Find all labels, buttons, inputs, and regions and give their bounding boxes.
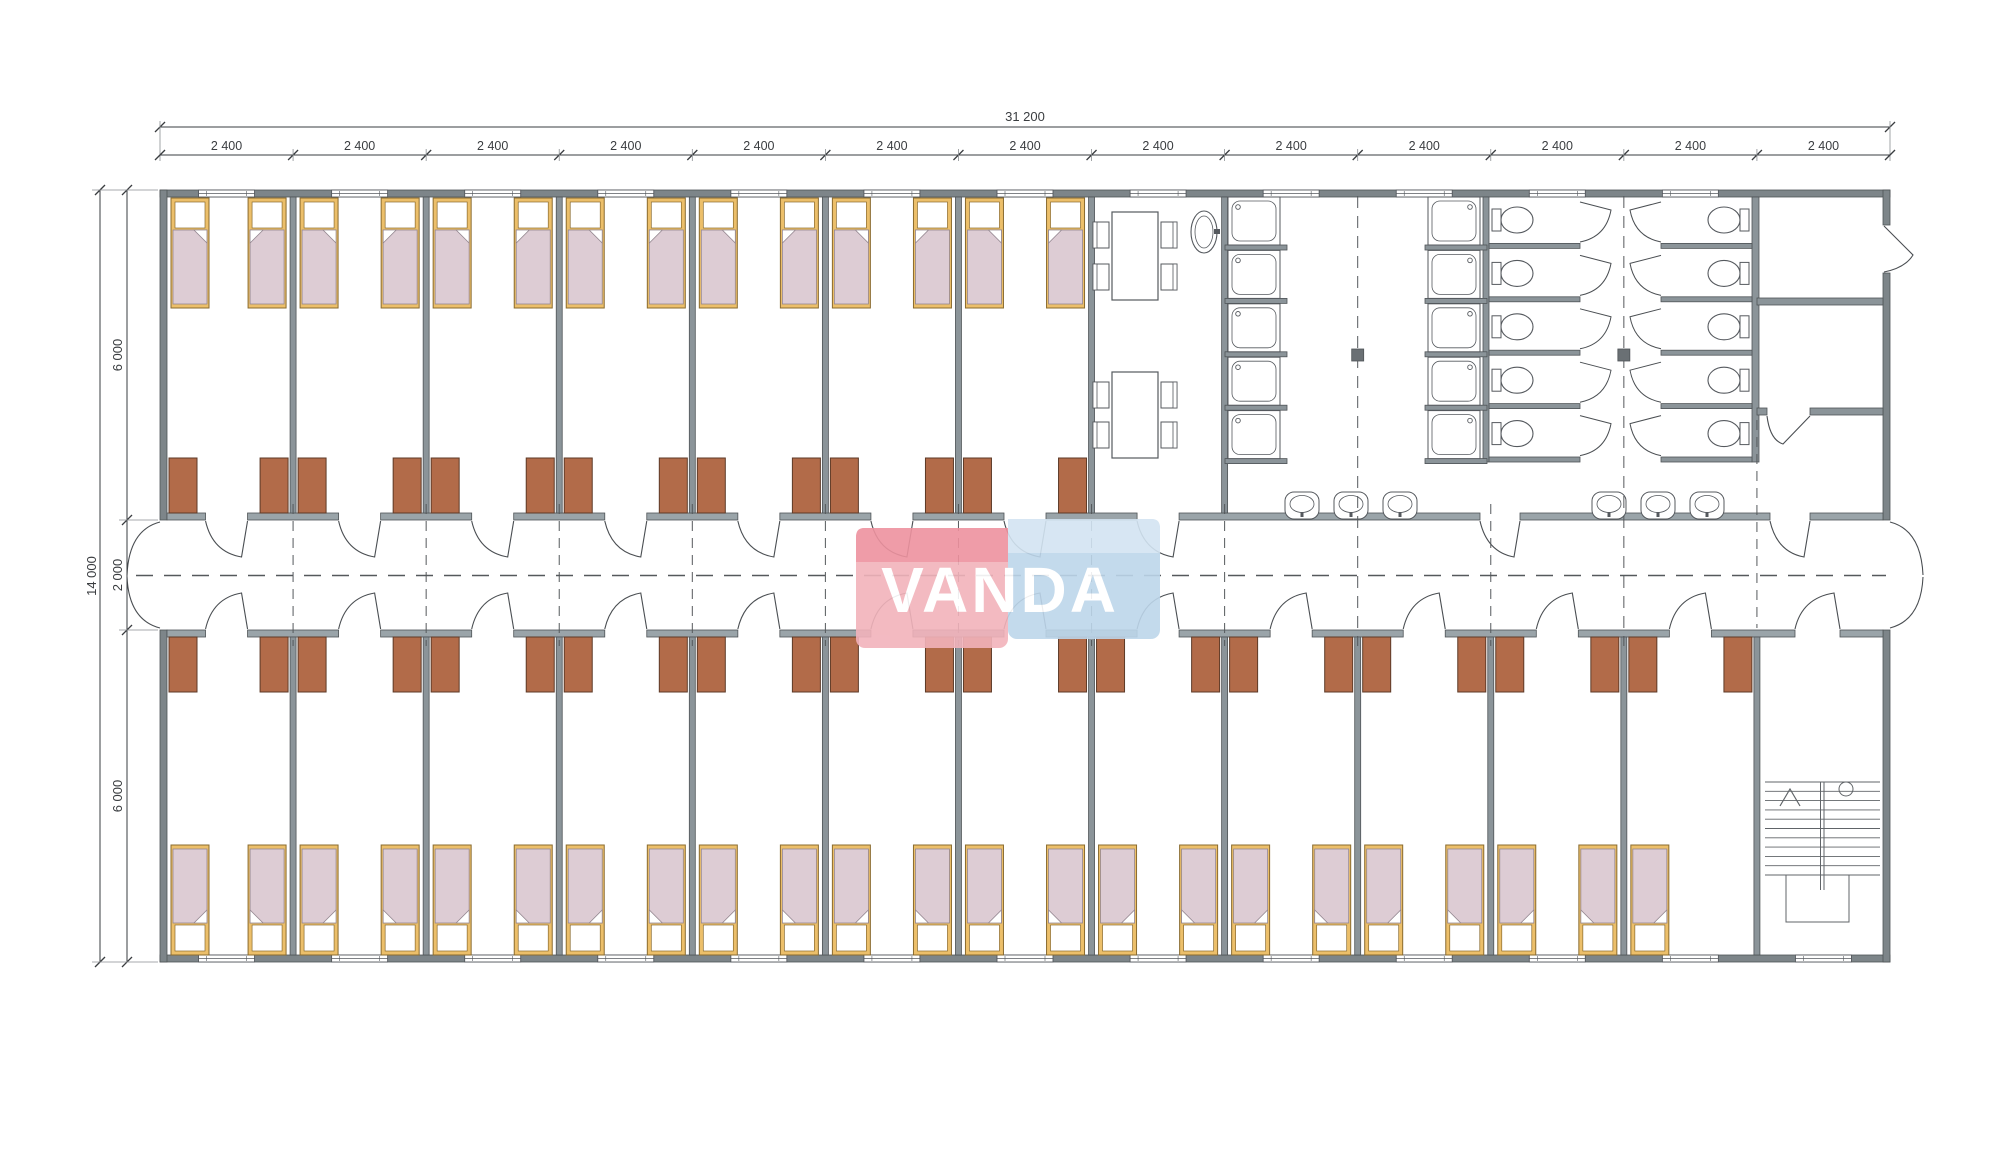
dimension-module-3: 2 400	[477, 139, 508, 153]
dimension-module-8: 2 400	[1142, 139, 1173, 153]
dimension-module-5: 2 400	[743, 139, 774, 153]
watermark-text: VANDA	[881, 554, 1119, 626]
dimension-total-height: 14 000	[84, 556, 99, 596]
dimension-total-width: 31 200	[1005, 109, 1045, 124]
dimension-module-13: 2 400	[1808, 139, 1839, 153]
vanda-watermark: VANDA	[856, 519, 1160, 648]
dimension-module-2: 2 400	[344, 139, 375, 153]
dimension-module-6: 2 400	[876, 139, 907, 153]
dimension-module-7: 2 400	[1009, 139, 1040, 153]
dimension-module-1: 2 400	[211, 139, 242, 153]
dimension-module-12: 2 400	[1675, 139, 1706, 153]
floor-plan-drawing: 31 2002 4002 4002 4002 4002 4002 4002 40…	[0, 0, 2000, 1164]
dimension-module-4: 2 400	[610, 139, 641, 153]
dimension-module-10: 2 400	[1409, 139, 1440, 153]
dimension-module-9: 2 400	[1276, 139, 1307, 153]
dimension-module-11: 2 400	[1542, 139, 1573, 153]
dimension-left-segment-0: 6 000	[110, 339, 125, 372]
dimension-left-segment-2: 6 000	[110, 780, 125, 813]
dimension-left-segment-1: 2 000	[110, 559, 125, 592]
floor-plan: 31 2002 4002 4002 4002 4002 4002 4002 40…	[0, 0, 2000, 1164]
